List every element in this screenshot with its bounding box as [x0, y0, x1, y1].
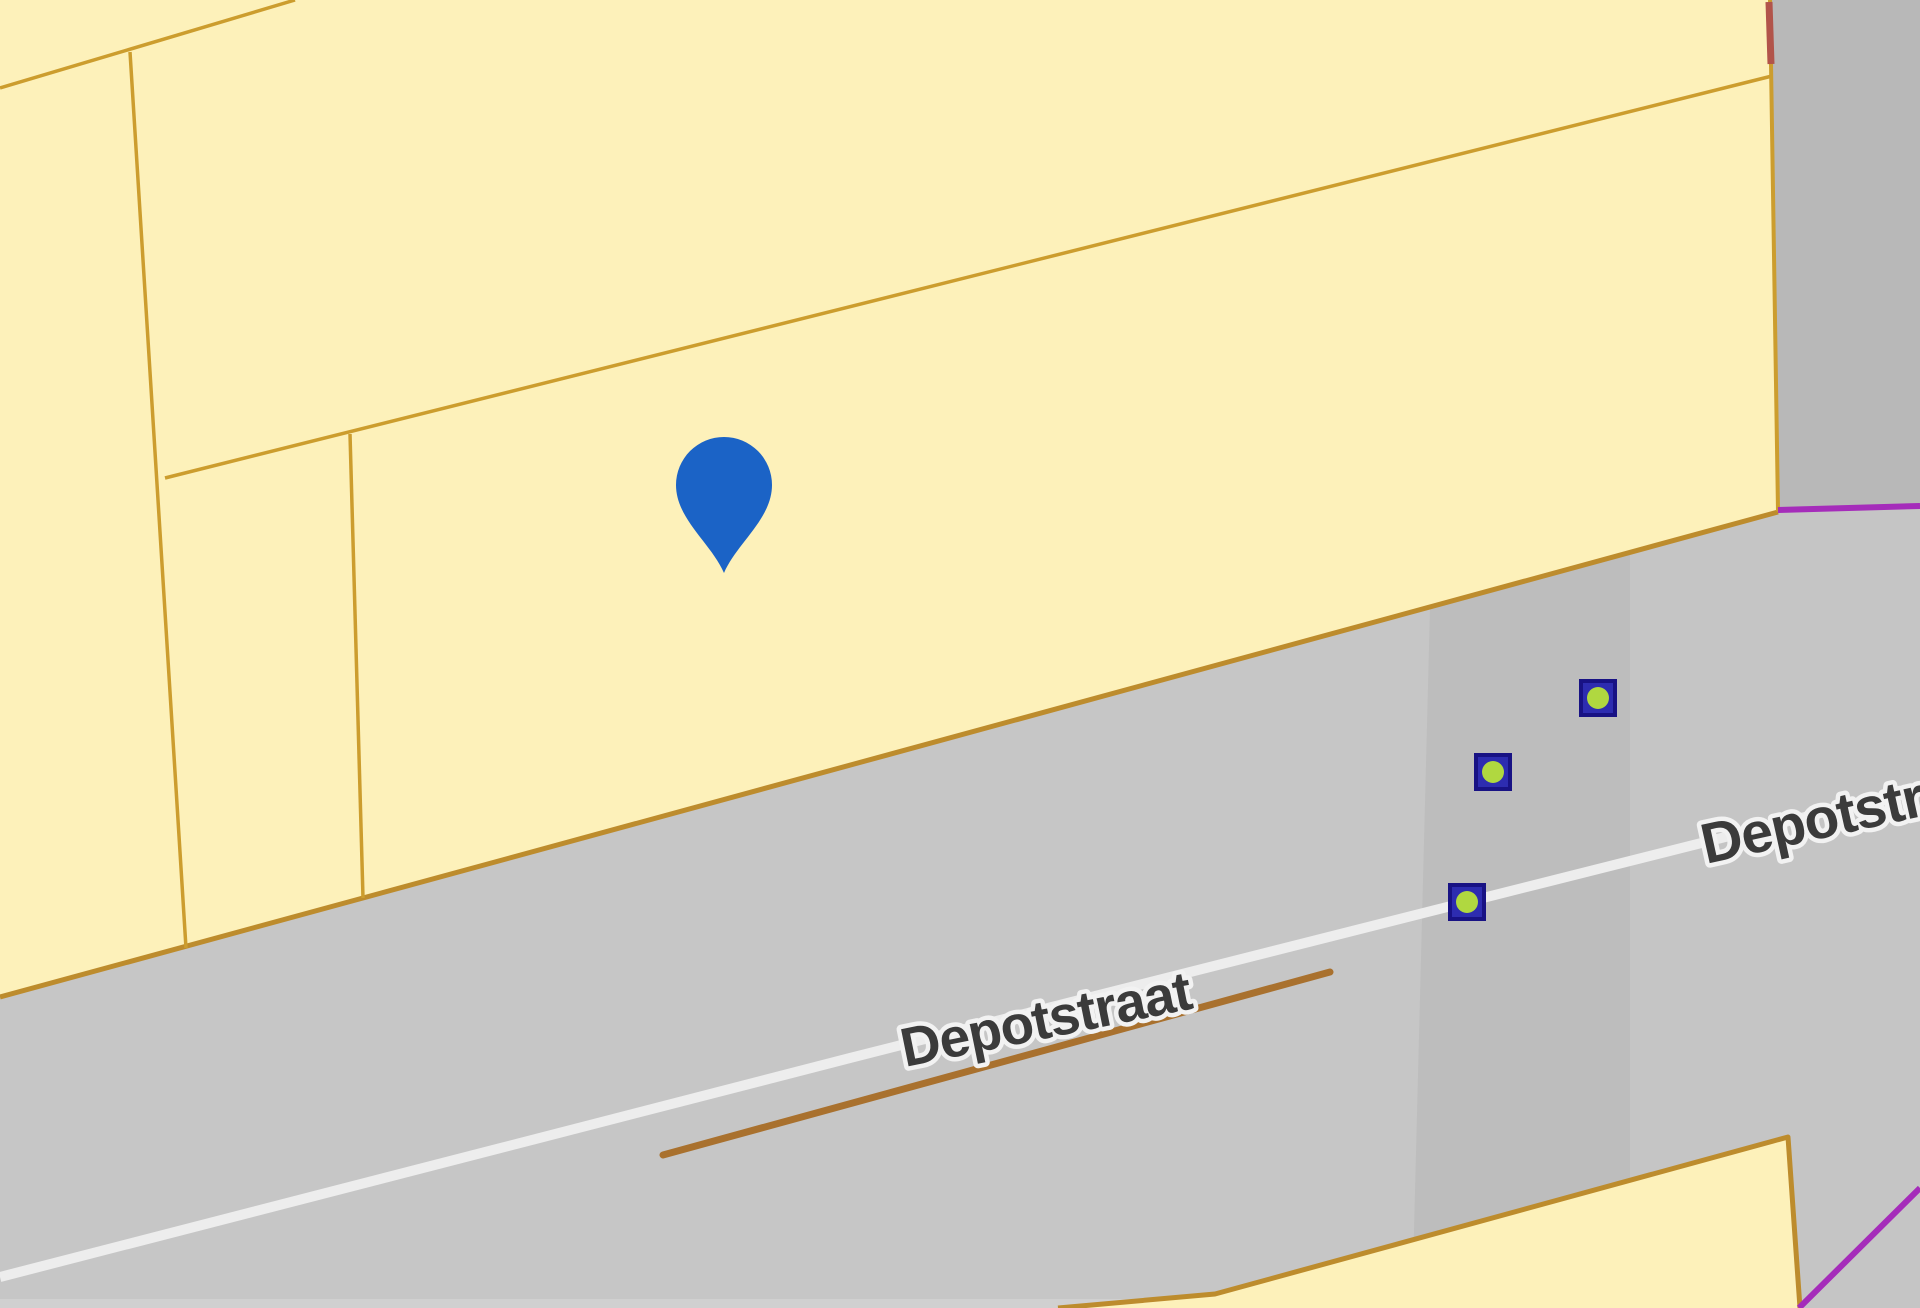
node-marker-dot	[1456, 891, 1478, 913]
map-canvas[interactable]: Depotstraat Depotstraat	[0, 0, 1920, 1308]
boundary-purple-top	[1778, 506, 1920, 510]
map-viewport[interactable]: Depotstraat Depotstraat	[0, 0, 1920, 1308]
road-bottom-light-strip	[0, 1299, 1150, 1308]
node-marker-dot	[1482, 761, 1504, 783]
node-marker-dot	[1587, 687, 1609, 709]
road-surface-top-right	[1772, 0, 1920, 510]
street-node-marker[interactable]	[1450, 885, 1484, 919]
street-node-marker[interactable]	[1581, 681, 1615, 715]
parcel-right-border-red-segment	[1769, 2, 1771, 64]
street-node-marker[interactable]	[1476, 755, 1510, 789]
